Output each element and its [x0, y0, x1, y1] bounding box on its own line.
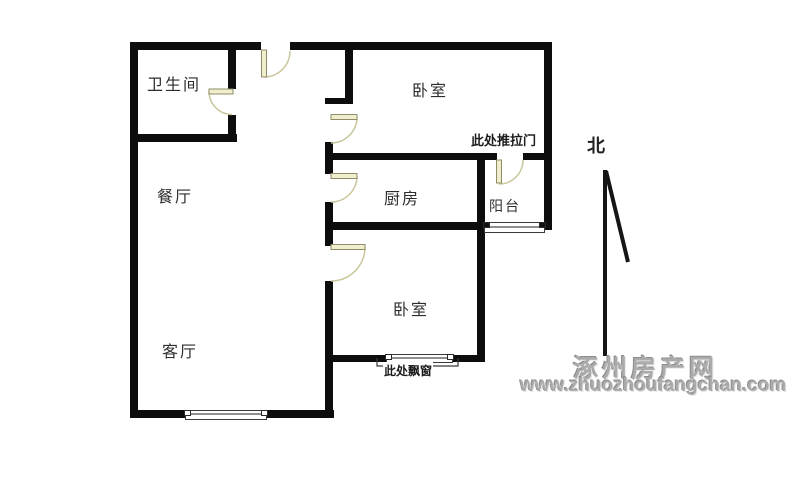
watermark-site-url: www.zhuozhoufangchan.com: [520, 375, 786, 397]
kitchen-label: 厨房: [384, 185, 420, 209]
living-room-label: 客厅: [162, 338, 198, 362]
bathroom-door-leaf: [209, 89, 233, 94]
bedroom-bottom-door-leaf: [331, 245, 365, 250]
symbols-overlay: [0, 0, 800, 494]
bedroom-bottom-label: 卧室: [393, 296, 429, 320]
bathroom-label: 卫生间: [147, 71, 201, 95]
sliding-door-note: 此处推拉门: [471, 130, 536, 149]
bedroom-top-door-leaf: [331, 115, 357, 120]
bathroom-door-arc: [209, 92, 232, 115]
north-label: 北: [587, 132, 605, 158]
north-arrow-head: [606, 171, 628, 262]
floor-plan-canvas: 卫生间 餐厅 客厅 卧室 厨房 阳台 卧室 此处推拉门 此处飘窗 北 涿州房产网…: [0, 0, 800, 494]
bedroom-top-door-arc: [331, 117, 357, 143]
dining-room-label: 餐厅: [157, 183, 193, 207]
kitchen-door-leaf: [331, 174, 357, 179]
balcony-label: 阳台: [489, 196, 521, 216]
bay-window-note: 此处飘窗: [383, 362, 433, 379]
kitchen-door-arc: [331, 176, 357, 202]
entry-door-leaf: [262, 50, 267, 77]
bedroom-top-label: 卧室: [412, 77, 448, 101]
bedroom-bottom-door-arc: [331, 247, 365, 281]
entry-door-arc: [264, 51, 290, 77]
balcony-sliding-door-arc: [499, 160, 523, 184]
balcony-sliding-door-leaf: [497, 160, 502, 183]
